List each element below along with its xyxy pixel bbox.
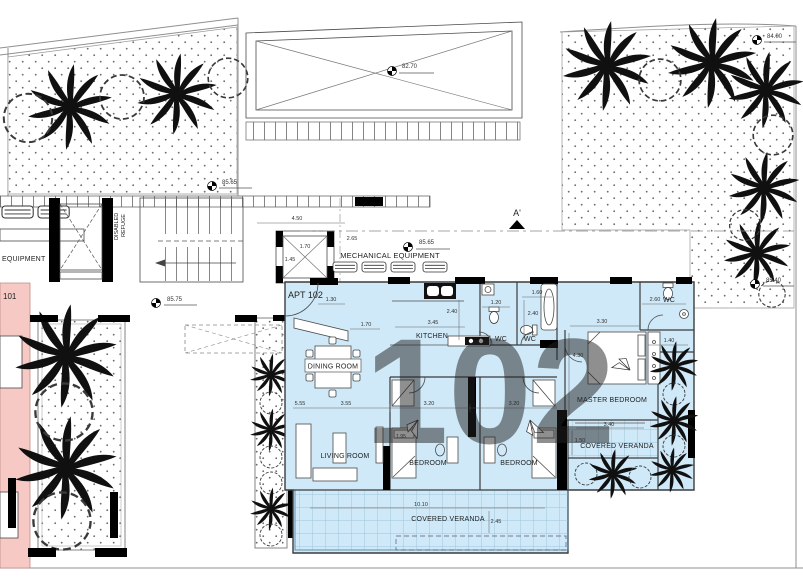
disabled-refuge-label: REFUGE xyxy=(121,214,127,237)
roof-void: 82.70 xyxy=(246,22,522,140)
dim-label: 5.55 xyxy=(295,401,306,407)
sofa xyxy=(313,468,357,481)
mechanical-equipment-label: MECHANICAL EQUIPMENT xyxy=(340,251,440,260)
level-marker-icon xyxy=(404,243,413,252)
section-marker-label: A' xyxy=(513,208,521,218)
level-value: 82.70 xyxy=(402,64,418,70)
level-value: 85.65 xyxy=(419,240,435,246)
room-label-living: LIVING ROOM xyxy=(321,453,370,460)
staircase xyxy=(140,198,243,282)
wall-segment xyxy=(49,198,60,282)
apartment-101: 101 xyxy=(0,283,30,568)
dim-label: 1.70 xyxy=(300,244,311,250)
dim-label: 10.10 xyxy=(414,502,428,508)
level-value: 85.65 xyxy=(222,180,238,186)
floor-plan-drawing: 85.65 84.00 85.40 82.70 xyxy=(0,0,803,578)
pillow xyxy=(638,359,645,380)
room-label-dining: DINING ROOM xyxy=(308,364,358,371)
garden-northwest: 85.65 xyxy=(4,27,252,194)
basin xyxy=(680,310,689,319)
room-label-wc-master: WC xyxy=(663,297,675,304)
dim-label: 2.65 xyxy=(347,236,358,242)
equipment-label: EQUIPMENT xyxy=(2,256,46,263)
level-value: 84.00 xyxy=(767,34,783,40)
dim-label: 1.40 xyxy=(664,338,675,344)
room-label-veranda-main: COVERED VERANDA xyxy=(411,516,485,523)
dim-label: 1.30 xyxy=(326,297,337,303)
apartment-102-label: APT 102 xyxy=(288,290,323,300)
dim-label: 1.45 xyxy=(285,257,296,263)
dim-label: 2.60 xyxy=(650,297,661,303)
level-marker-icon xyxy=(388,67,397,76)
louver-unit-icon xyxy=(391,262,415,272)
dim-label: 1.60 xyxy=(532,290,543,296)
floor-plan: 85.65 84.00 85.40 82.70 xyxy=(0,0,803,578)
dim-label: 4.50 xyxy=(292,216,303,222)
level-value: 85.75 xyxy=(167,297,183,303)
level-marker-icon xyxy=(753,36,762,45)
unit-number-watermark: 102 xyxy=(365,307,615,475)
pillow xyxy=(638,335,645,356)
elevator-2: 1.70 1.45 xyxy=(276,231,334,283)
wall-segment xyxy=(102,198,113,282)
level-marker-icon xyxy=(152,299,161,308)
level-marker-icon xyxy=(751,280,760,289)
dim-label: 3.55 xyxy=(341,401,352,407)
louver-unit-icon xyxy=(423,262,447,272)
dim-label: 1.20 xyxy=(491,300,502,306)
level-value: 85.40 xyxy=(766,278,782,284)
dim-label: 2.45 xyxy=(491,519,502,525)
louver-unit-icon xyxy=(2,206,33,218)
planter-west xyxy=(15,304,130,557)
level-marker-icon xyxy=(208,182,217,191)
apartment-102: APT 102 KITCHEN DINING ROOM WC WC WC LIV… xyxy=(285,277,698,553)
louver-unit-icon xyxy=(362,262,386,272)
sofa xyxy=(296,424,311,478)
louver-unit-icon xyxy=(333,262,357,272)
disabled-refuge-label: DISABLED xyxy=(114,213,120,240)
garden-northeast: 84.00 85.40 xyxy=(562,18,803,308)
section-marker-icon xyxy=(509,220,525,229)
apartment-101-label: 101 xyxy=(3,292,17,301)
